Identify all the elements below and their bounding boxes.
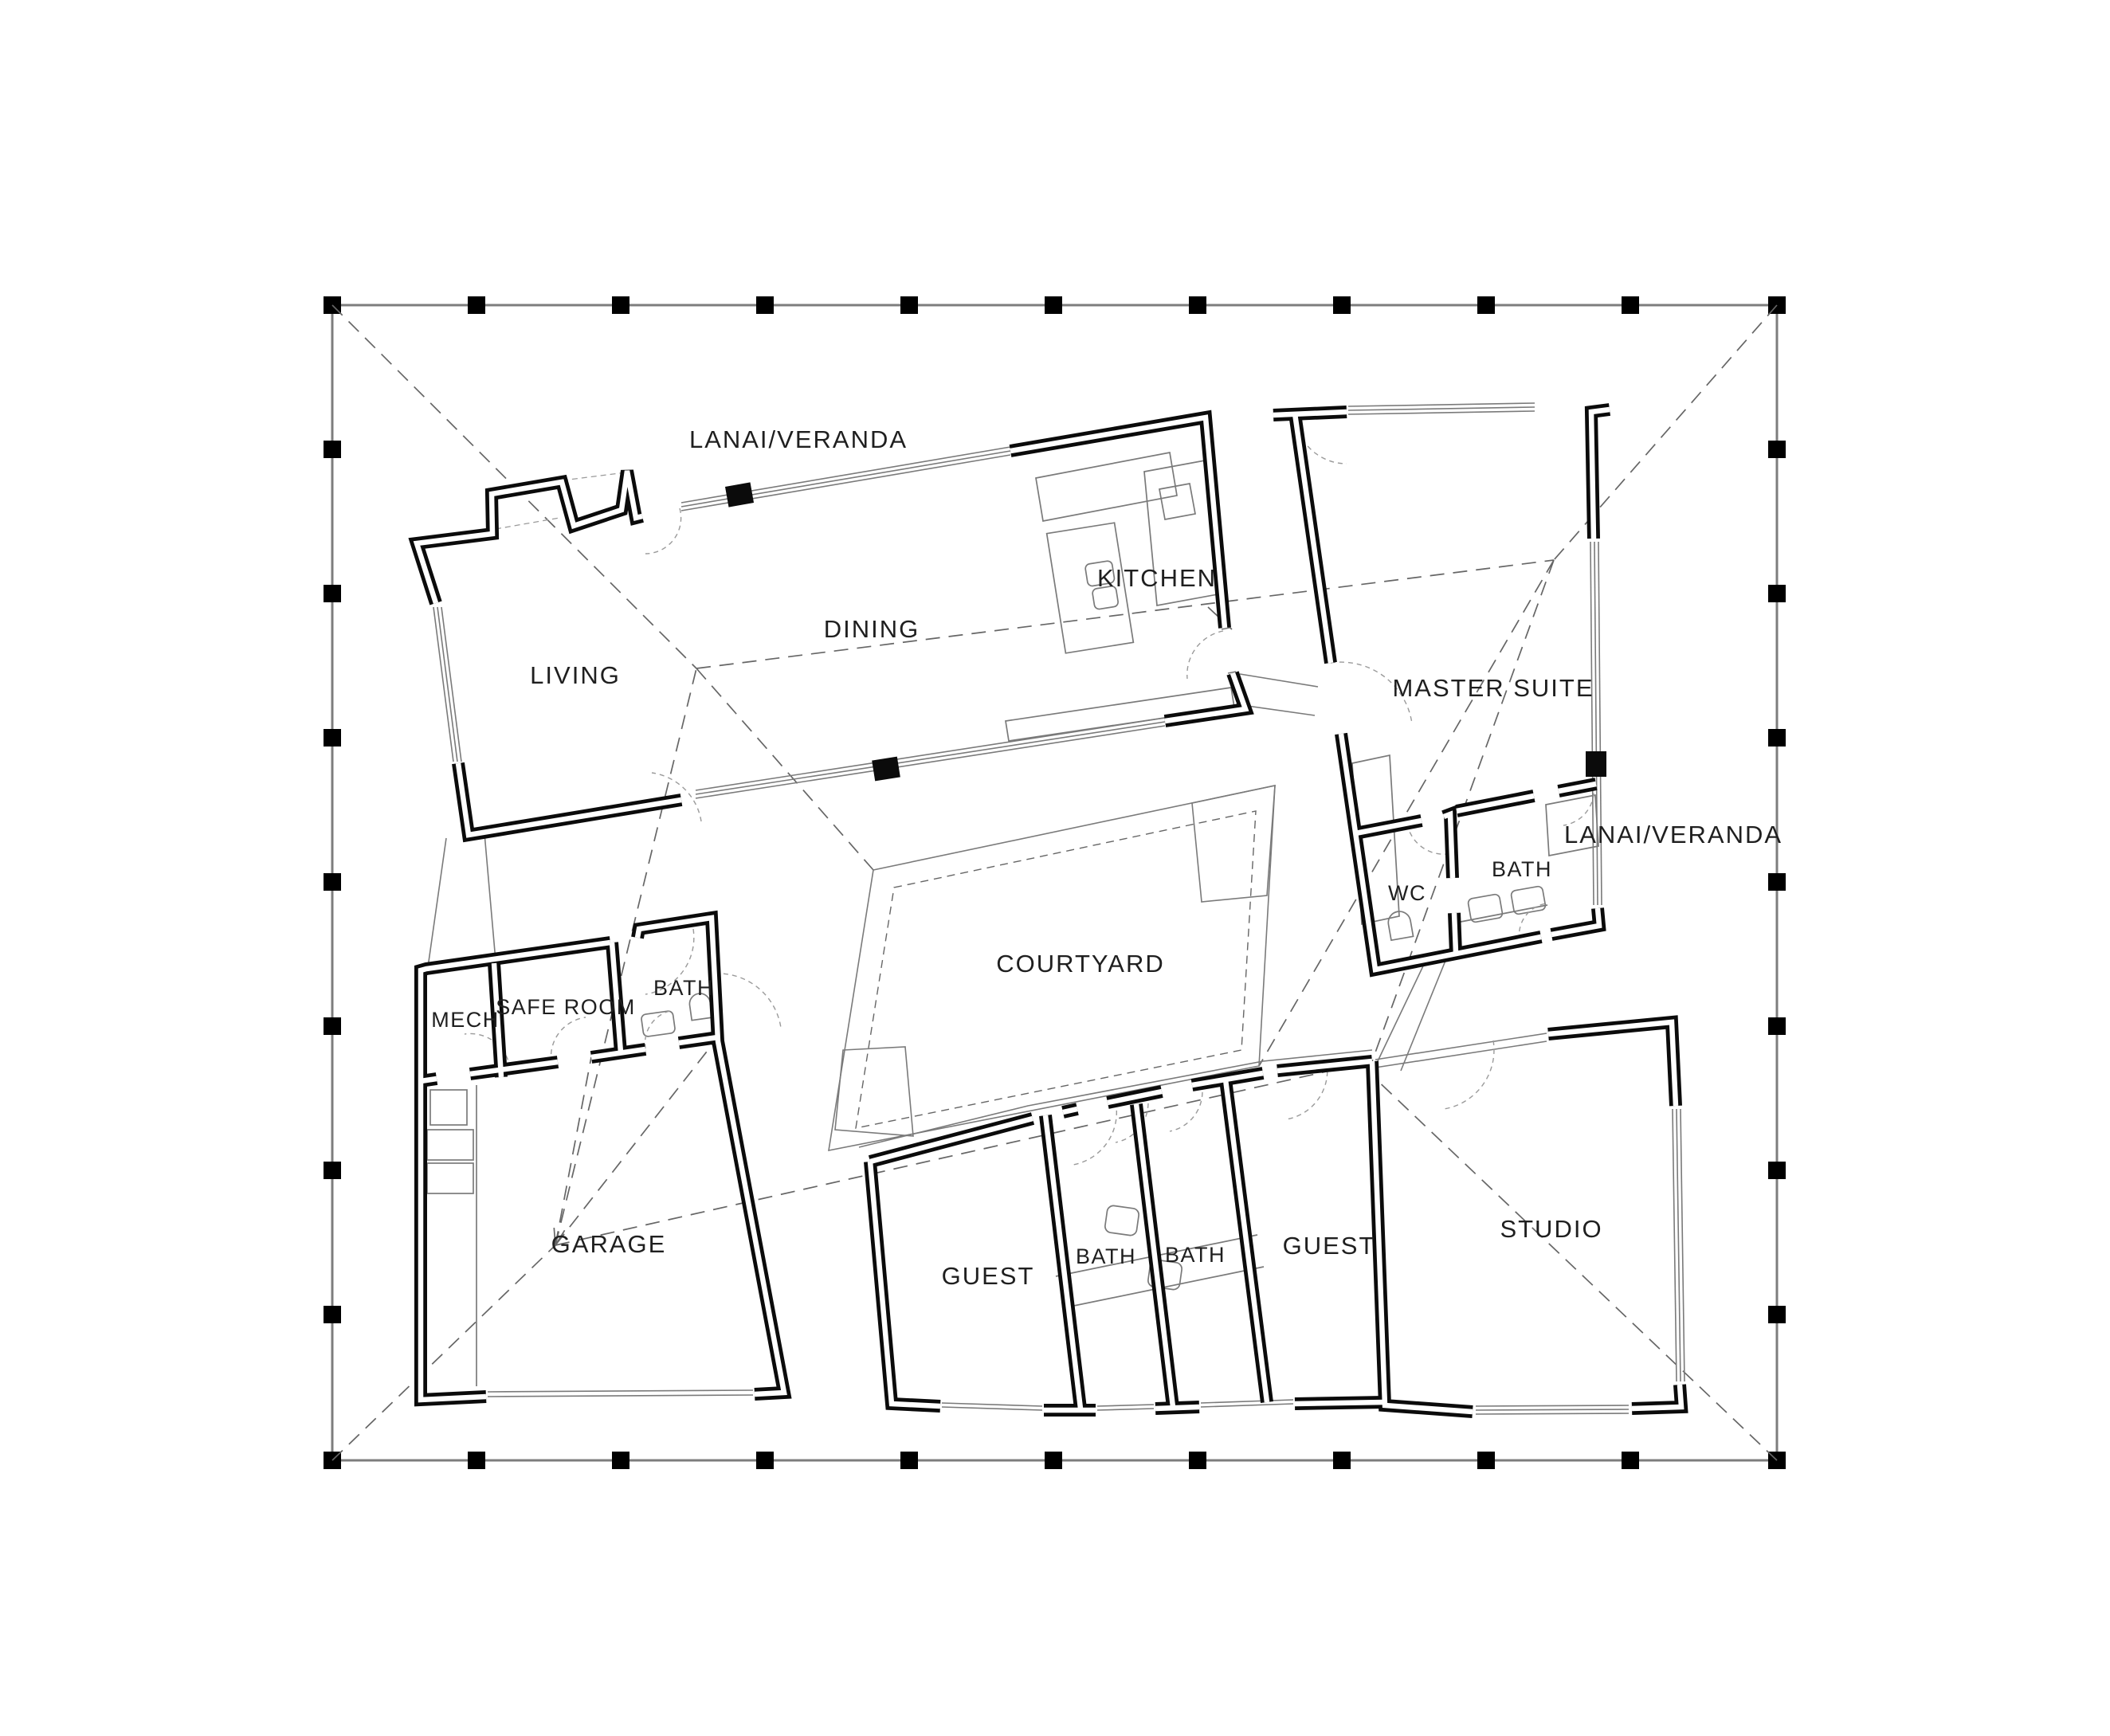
garage-storage-1 xyxy=(430,1090,467,1125)
wall-cores xyxy=(417,410,1681,1412)
label-bath-master: BATH xyxy=(1492,857,1552,881)
garage-bath-sink xyxy=(641,1010,676,1037)
floor-plan-page: LANAI/VERANDA LIVING DINING KITCHEN MAST… xyxy=(0,0,2110,1736)
label-studio: STUDIO xyxy=(1500,1215,1602,1243)
label-wc: WC xyxy=(1388,881,1426,905)
courtyard-bed-ne xyxy=(1192,786,1275,902)
floor-plan-drawing: LANAI/VERANDA LIVING DINING KITCHEN MAST… xyxy=(0,0,2110,1736)
label-mech: MECH xyxy=(431,1008,500,1032)
master-sink-1 xyxy=(1468,894,1504,923)
label-bath-guest-east: BATH xyxy=(1165,1243,1226,1267)
label-guest-west: GUEST xyxy=(942,1262,1035,1290)
label-garage: GARAGE xyxy=(551,1230,667,1258)
room-labels: LANAI/VERANDA LIVING DINING KITCHEN MAST… xyxy=(431,425,1783,1290)
label-bath-garage: BATH xyxy=(653,976,714,1000)
wc-toilet xyxy=(1386,910,1413,940)
label-bath-guest-west: BATH xyxy=(1076,1244,1136,1268)
courtyard-bed-sw xyxy=(835,1047,913,1136)
guest-bath-toilet-1 xyxy=(1104,1205,1139,1236)
garage-storage-2 xyxy=(427,1130,473,1160)
kitchen-counter-top xyxy=(1036,453,1177,521)
label-living: LIVING xyxy=(530,661,621,689)
walls xyxy=(417,410,1681,1412)
label-courtyard: COURTYARD xyxy=(996,950,1164,978)
label-safe-room: SAFE ROOM xyxy=(496,995,636,1019)
label-lanai-top: LANAI/VERANDA xyxy=(689,425,908,453)
label-guest-east: GUEST xyxy=(1283,1232,1376,1260)
label-master-suite: MASTER SUITE xyxy=(1392,674,1594,702)
label-dining: DINING xyxy=(824,615,920,643)
kitchen-appliance xyxy=(1159,484,1195,519)
label-lanai-right: LANAI/VERANDA xyxy=(1564,821,1783,848)
master-sink-2 xyxy=(1511,886,1547,915)
roof-post-markers xyxy=(324,296,1786,1469)
garage-storage-3 xyxy=(427,1163,473,1193)
label-kitchen: KITCHEN xyxy=(1097,564,1217,592)
